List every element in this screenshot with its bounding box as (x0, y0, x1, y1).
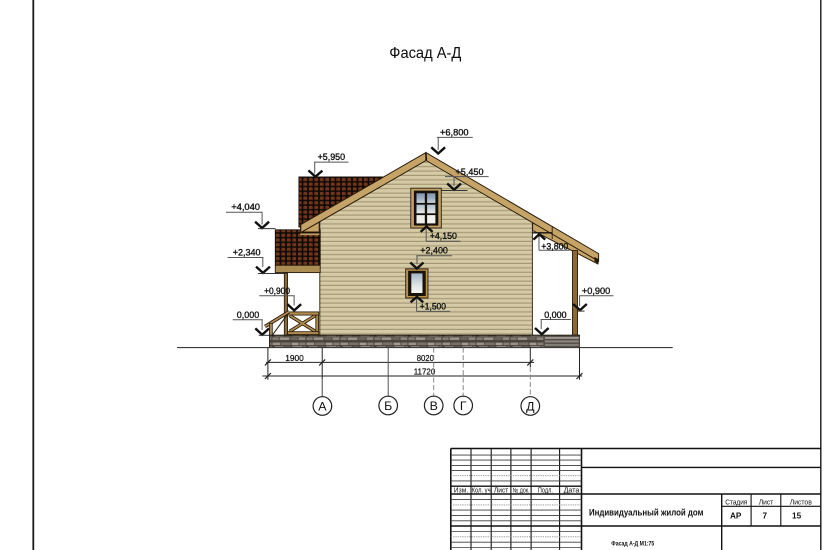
svg-text:+4,150: +4,150 (430, 231, 457, 242)
svg-text:15: 15 (792, 512, 802, 521)
svg-text:Лист: Лист (494, 488, 509, 495)
svg-text:+3,800: +3,800 (541, 241, 568, 252)
svg-text:11720: 11720 (414, 367, 436, 377)
svg-text:№ док.: № док. (513, 488, 530, 495)
svg-text:В: В (430, 399, 438, 413)
svg-text:Дата: Дата (564, 488, 580, 495)
svg-text:8020: 8020 (417, 353, 435, 363)
svg-text:0,000: 0,000 (544, 310, 567, 321)
svg-text:+1,500: +1,500 (420, 301, 446, 312)
svg-text:Фасад А-Д М1:75: Фасад А-Д М1:75 (611, 541, 655, 547)
svg-text:Подл.: Подл. (538, 488, 553, 495)
svg-text:+2,400: +2,400 (420, 246, 448, 257)
svg-text:Индивидуальный жилой дом: Индивидуальный жилой дом (589, 507, 704, 517)
svg-text:А: А (318, 399, 327, 413)
svg-text:Кол. уч: Кол. уч (472, 488, 491, 495)
svg-text:+0,900: +0,900 (582, 286, 610, 297)
svg-text:7: 7 (763, 512, 768, 521)
svg-text:0,000: 0,000 (237, 310, 259, 321)
svg-text:+6,800: +6,800 (440, 128, 469, 139)
svg-text:АР: АР (730, 512, 742, 521)
svg-text:+4,040: +4,040 (231, 202, 260, 213)
svg-text:+5,450: +5,450 (456, 167, 484, 178)
svg-text:Лист: Лист (759, 500, 774, 507)
svg-text:Д: Д (526, 399, 535, 413)
svg-text:1900: 1900 (285, 353, 304, 363)
svg-text:Б: Б (384, 399, 392, 413)
svg-text:Фасад А-Д: Фасад А-Д (389, 45, 461, 62)
svg-text:+2,340: +2,340 (233, 248, 261, 259)
svg-text:Стадия: Стадия (725, 500, 747, 507)
svg-text:+5,950: +5,950 (318, 152, 346, 163)
svg-text:Г: Г (460, 399, 467, 413)
svg-text:+0,900: +0,900 (264, 286, 290, 297)
svg-text:Изм.: Изм. (454, 488, 468, 495)
svg-text:Листов: Листов (790, 500, 812, 507)
